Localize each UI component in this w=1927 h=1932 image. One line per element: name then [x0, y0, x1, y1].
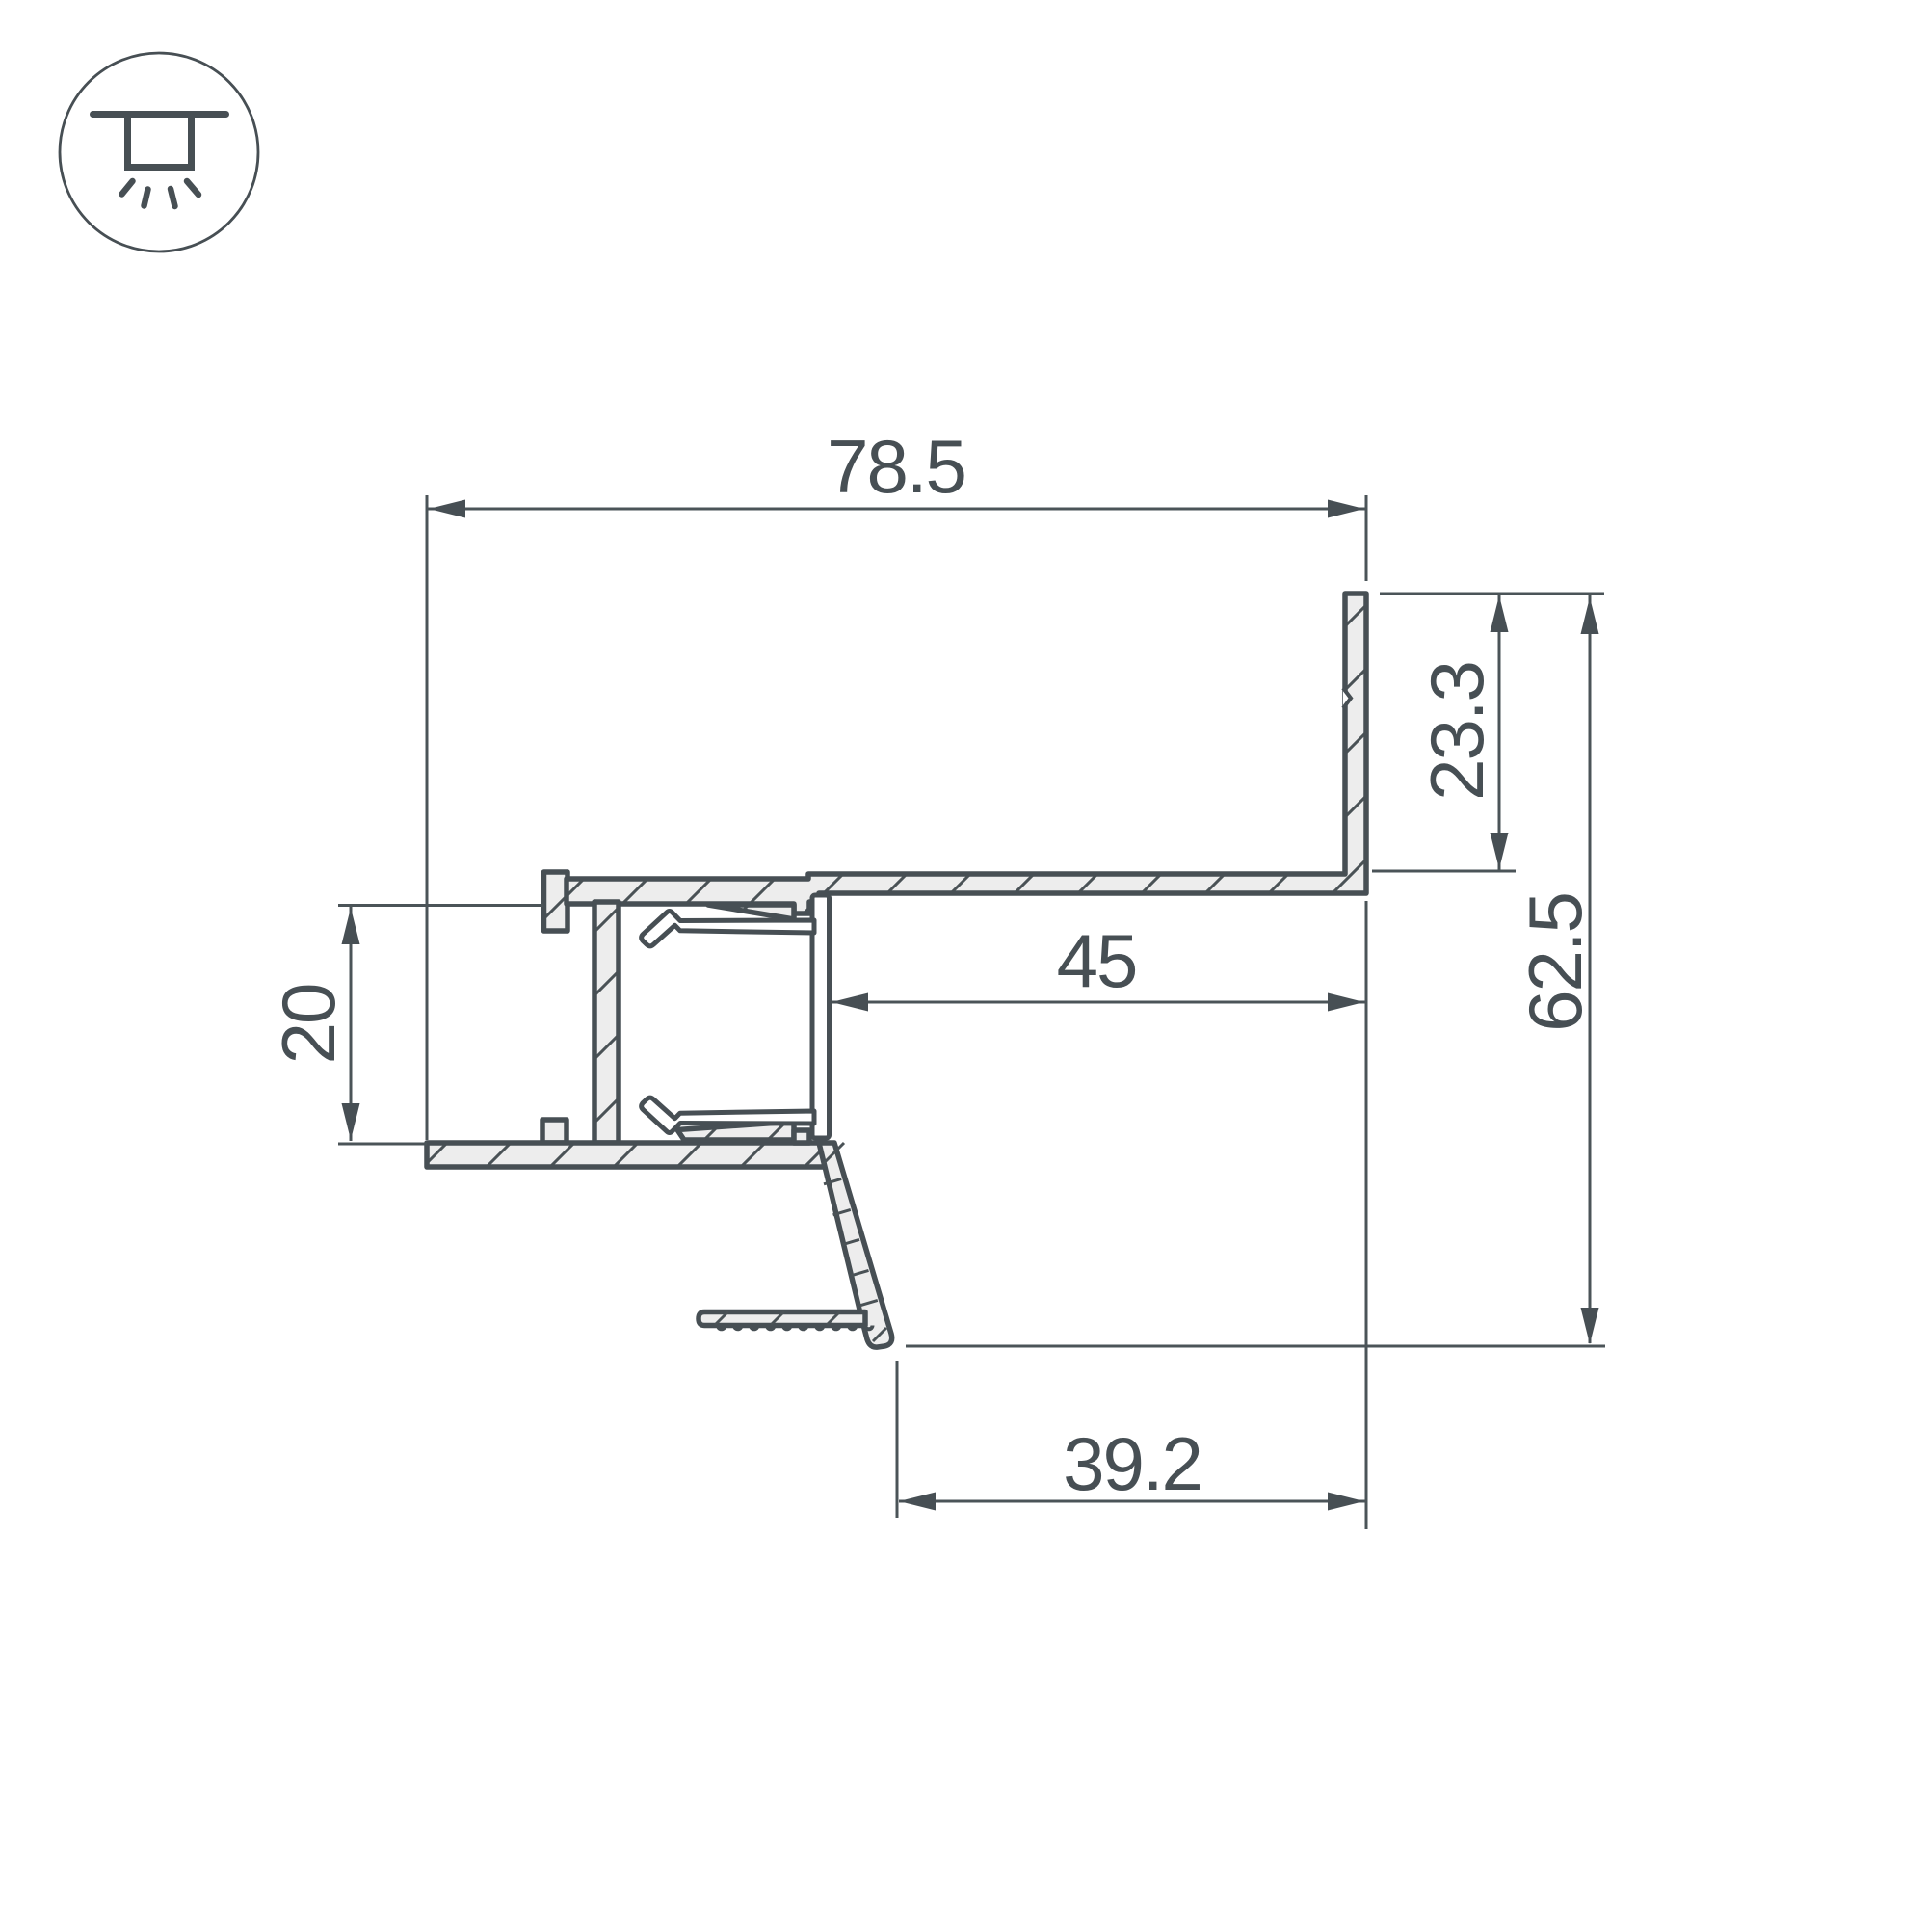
svg-text:20: 20 — [266, 985, 351, 1065]
svg-text:39.2: 39.2 — [1063, 1421, 1201, 1506]
svg-text:45: 45 — [1057, 918, 1137, 1003]
svg-text:62.5: 62.5 — [1513, 893, 1597, 1032]
svg-text:23.3: 23.3 — [1414, 662, 1499, 801]
svg-text:78.5: 78.5 — [827, 424, 965, 509]
